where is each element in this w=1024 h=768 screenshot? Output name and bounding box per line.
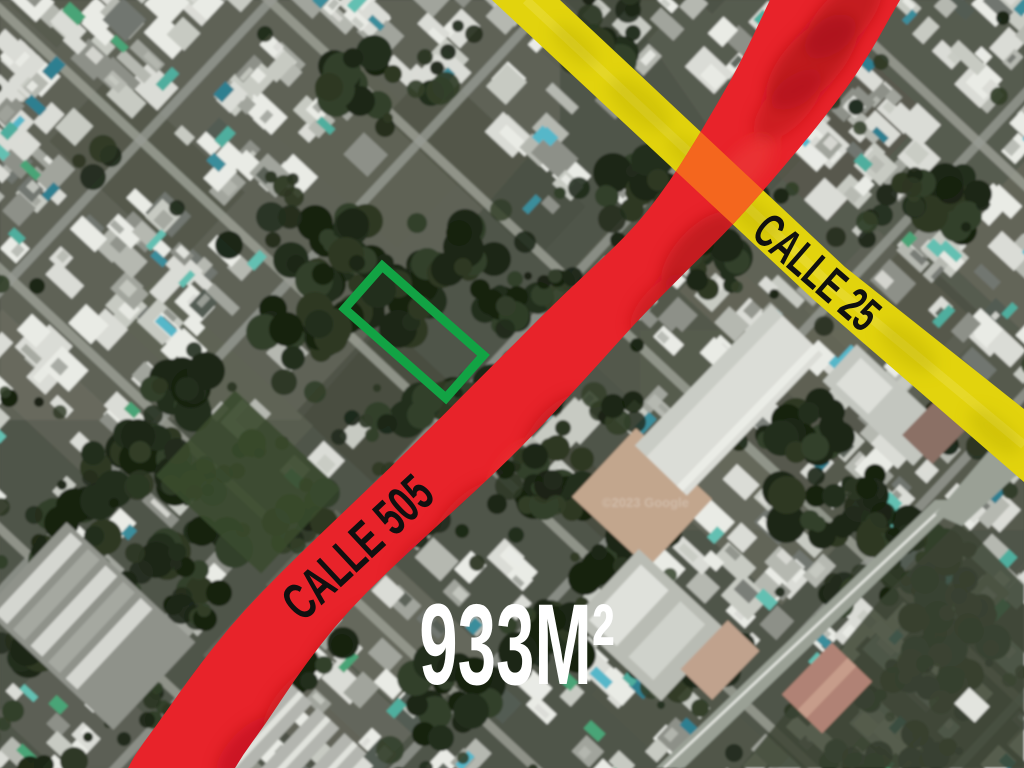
svg-text:933M²: 933M²	[419, 581, 615, 710]
svg-text:©2023 Google: ©2023 Google	[602, 495, 689, 510]
